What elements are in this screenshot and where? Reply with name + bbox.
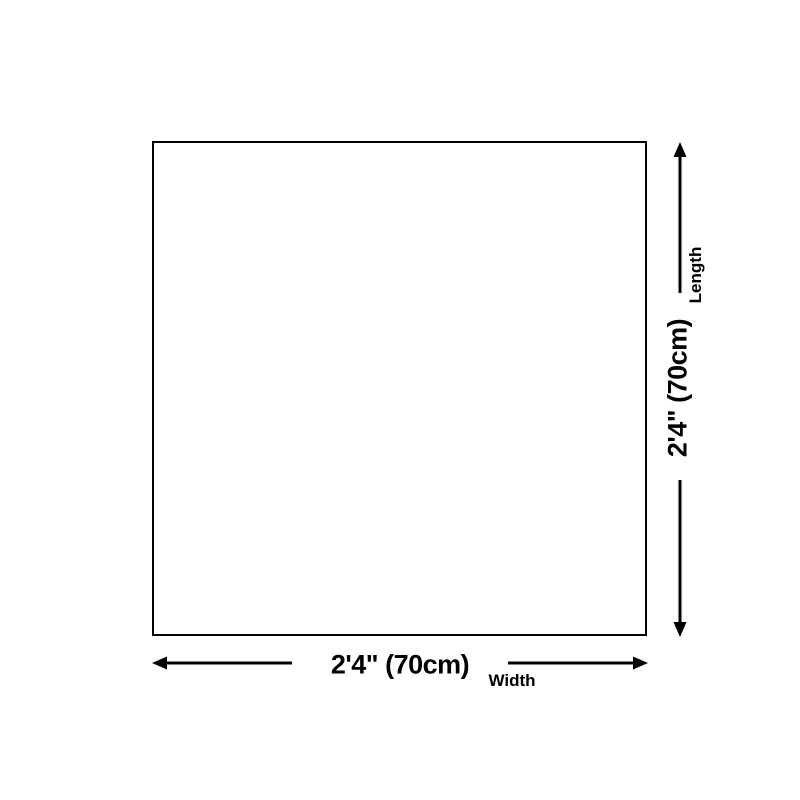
- width-arrow-left-icon: [152, 657, 292, 670]
- width-dimension-value: 2'4" (70cm): [331, 650, 469, 681]
- dimension-diagram: 2'4" (70cm) Width 2'4" (70cm) Length: [0, 0, 800, 800]
- width-dimension-label: Width: [488, 671, 535, 691]
- length-arrow-up-icon: [674, 142, 687, 293]
- product-outline: [152, 141, 647, 636]
- width-arrow-right-icon: [508, 657, 648, 670]
- length-arrow-down-icon: [674, 480, 687, 637]
- length-dimension-value: 2'4" (70cm): [663, 319, 694, 457]
- length-dimension-label: Length: [686, 247, 706, 304]
